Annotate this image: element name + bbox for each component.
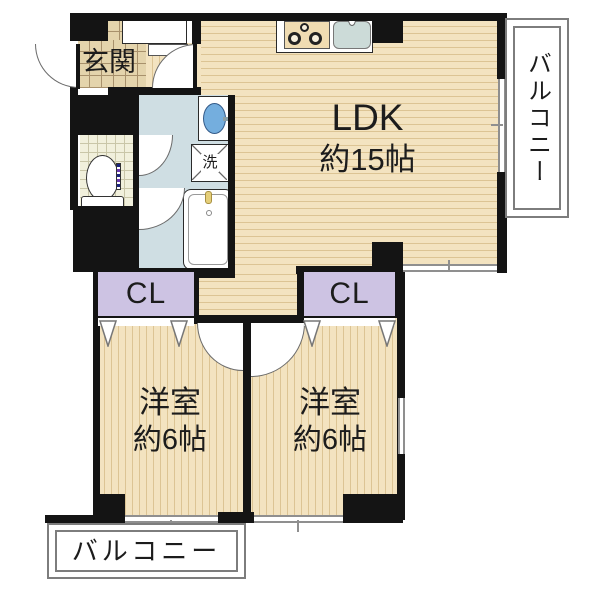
wall-washroom-right [228, 95, 235, 273]
entrance-hall-door-leaf [193, 44, 197, 89]
wall-toilet-top-block [70, 95, 133, 135]
toilet-washlet-buttons-icon [116, 163, 121, 190]
wall-bottom-mid [218, 512, 254, 523]
shoe-cabinet [122, 17, 187, 44]
wall-entrance-bottom [108, 87, 201, 95]
bathtub-drain-icon [206, 210, 212, 216]
bedroom-right-name: 洋室 [299, 384, 361, 423]
stove-burner-icon [300, 23, 309, 32]
window-tick [448, 260, 450, 272]
closet-door-marker-icon [303, 320, 321, 347]
wall-bottom-right-block [343, 494, 403, 523]
floor-plan: 洗 CL [0, 0, 600, 600]
closet-right-label: CL [329, 277, 369, 311]
wall-topleft-block [70, 13, 108, 41]
wall-balcony-stub [45, 515, 93, 523]
bedroom-left-name: 洋室 [139, 384, 201, 423]
wall-toilet-bottom-block [73, 206, 133, 272]
wall-ldk-pillar [372, 242, 403, 268]
balcony-right-label: バルコニー [520, 51, 555, 186]
balcony-bottom-inner: バルコニー [55, 530, 238, 572]
laundry-label: 洗 [201, 154, 219, 172]
balcony-bottom-label: バルコニー [72, 535, 221, 568]
entrance-label: 玄関 [76, 46, 142, 80]
closet-right: CL [302, 270, 397, 318]
bathtub-inner [188, 194, 228, 265]
toilet-bowl-icon [86, 155, 119, 201]
ldk-label: LDK 約15帖 [280, 95, 455, 179]
bedroom-right-size: 約6帖 [293, 422, 367, 458]
wall-entrance-right [192, 13, 201, 44]
bedroom-left-size: 約6帖 [133, 422, 207, 458]
window-tick [491, 124, 503, 126]
closet-door-marker-icon [170, 320, 188, 347]
balcony-right-inner: バルコニー [513, 26, 561, 210]
closet-left-label: CL [126, 277, 166, 311]
entrance-door-arc [35, 44, 79, 88]
wall-top [70, 13, 507, 21]
wall-toilet-left [70, 135, 78, 210]
washing-machine-area: 洗 [191, 144, 229, 182]
closet-door-marker-icon [99, 320, 117, 347]
bathtub-faucet-icon [205, 191, 212, 204]
closet-left: CL [96, 270, 196, 318]
bedroom-right-label: 洋室 約6帖 [255, 378, 405, 464]
ldk-name: LDK [332, 95, 404, 141]
window-ldk-bottom [403, 264, 497, 272]
wall-bottom-left-block [93, 494, 125, 523]
closet-door-marker-icon [378, 320, 396, 347]
stove-burner-icon [288, 32, 301, 45]
window-tick [297, 520, 299, 532]
stove-burner-icon [309, 32, 322, 45]
wall-kitchen-pillar [372, 13, 403, 43]
ldk-size: 約15帖 [319, 141, 415, 180]
bedroom-left-label: 洋室 約6帖 [95, 378, 245, 464]
